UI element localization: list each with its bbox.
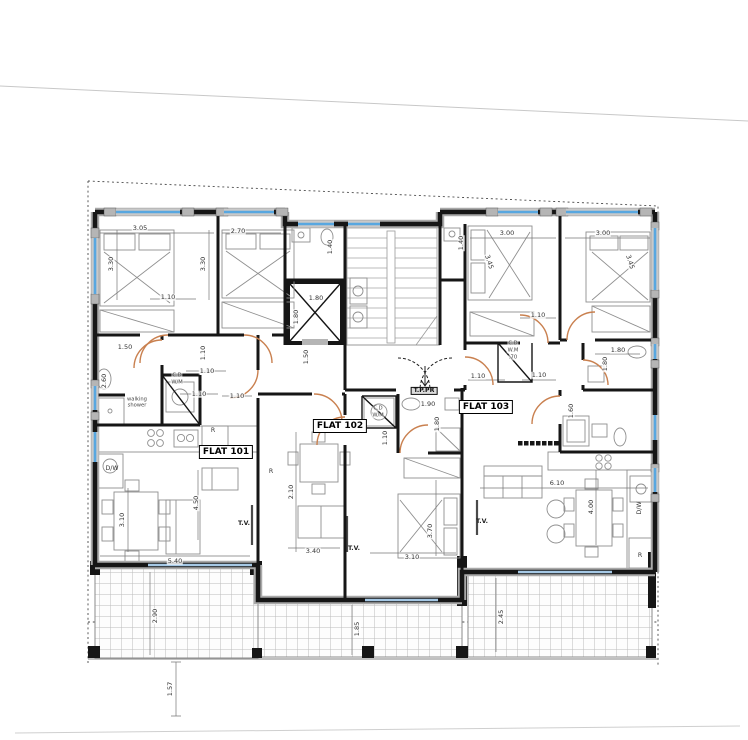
basin bbox=[445, 398, 459, 410]
dining-table bbox=[576, 490, 612, 546]
bed bbox=[222, 230, 294, 298]
furniture-flat-101 bbox=[97, 230, 294, 562]
bed bbox=[100, 230, 174, 306]
plan-drawing bbox=[0, 0, 748, 740]
kitchen-sink bbox=[630, 476, 652, 502]
loveseat bbox=[202, 468, 238, 490]
dining-table bbox=[114, 492, 158, 550]
elevator bbox=[288, 282, 342, 345]
elevator-door bbox=[302, 339, 328, 345]
terrace-flat-102 bbox=[258, 600, 462, 657]
lower-site-line bbox=[15, 726, 740, 733]
lot-line bbox=[0, 86, 748, 121]
basin bbox=[592, 424, 607, 437]
fridge bbox=[202, 426, 228, 452]
toilet bbox=[628, 346, 646, 358]
sofa bbox=[484, 466, 542, 498]
terrace-flat-103 bbox=[468, 572, 652, 657]
sofa bbox=[166, 500, 200, 554]
armchair bbox=[547, 525, 565, 543]
toilet bbox=[402, 398, 420, 410]
furniture-flat-102 bbox=[288, 398, 460, 558]
armchair bbox=[547, 500, 565, 518]
walk-in-shower bbox=[97, 398, 124, 424]
stair-stringer bbox=[387, 231, 395, 343]
terrace-flat-101 bbox=[95, 565, 258, 658]
toilet bbox=[614, 428, 626, 446]
room-divider-blocks bbox=[518, 441, 559, 446]
floor-plan-sheet: 3.052.703.303.301.101.401.801.801.501.40… bbox=[0, 0, 748, 740]
bed bbox=[398, 494, 460, 558]
closet-partitions bbox=[162, 343, 532, 428]
dining-table bbox=[300, 444, 338, 482]
